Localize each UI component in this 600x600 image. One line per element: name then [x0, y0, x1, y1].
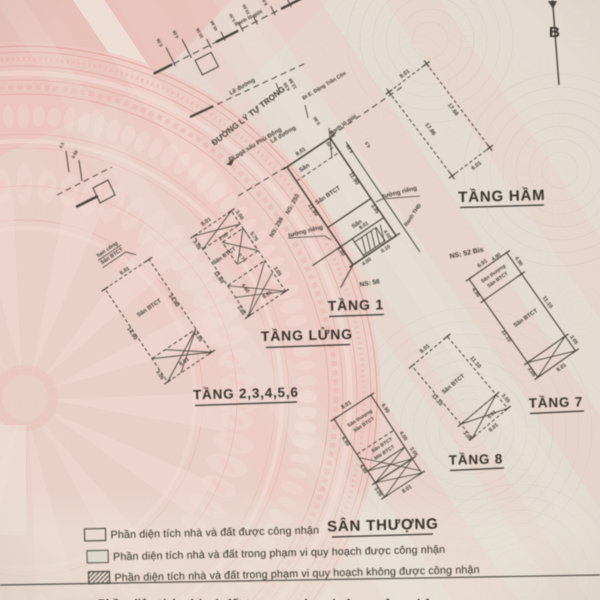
svg-text:B: B — [549, 24, 560, 41]
svg-text:TẦNG 2,3,4,5,6: TẦNG 2,3,4,5,6 — [193, 385, 299, 403]
svg-text:TẦNG 1: TẦNG 1 — [328, 296, 385, 313]
svg-text:TẦNG LỬNG: TẦNG LỬNG — [261, 325, 353, 344]
svg-text:SÂN THƯỢNG: SÂN THƯỢNG — [327, 515, 439, 536]
svg-text:TẦNG 8: TẦNG 8 — [449, 451, 504, 467]
svg-text:TẦNG HẦM: TẦNG HẦM — [458, 187, 546, 206]
svg-text:TẦNG 7: TẦNG 7 — [529, 394, 584, 410]
